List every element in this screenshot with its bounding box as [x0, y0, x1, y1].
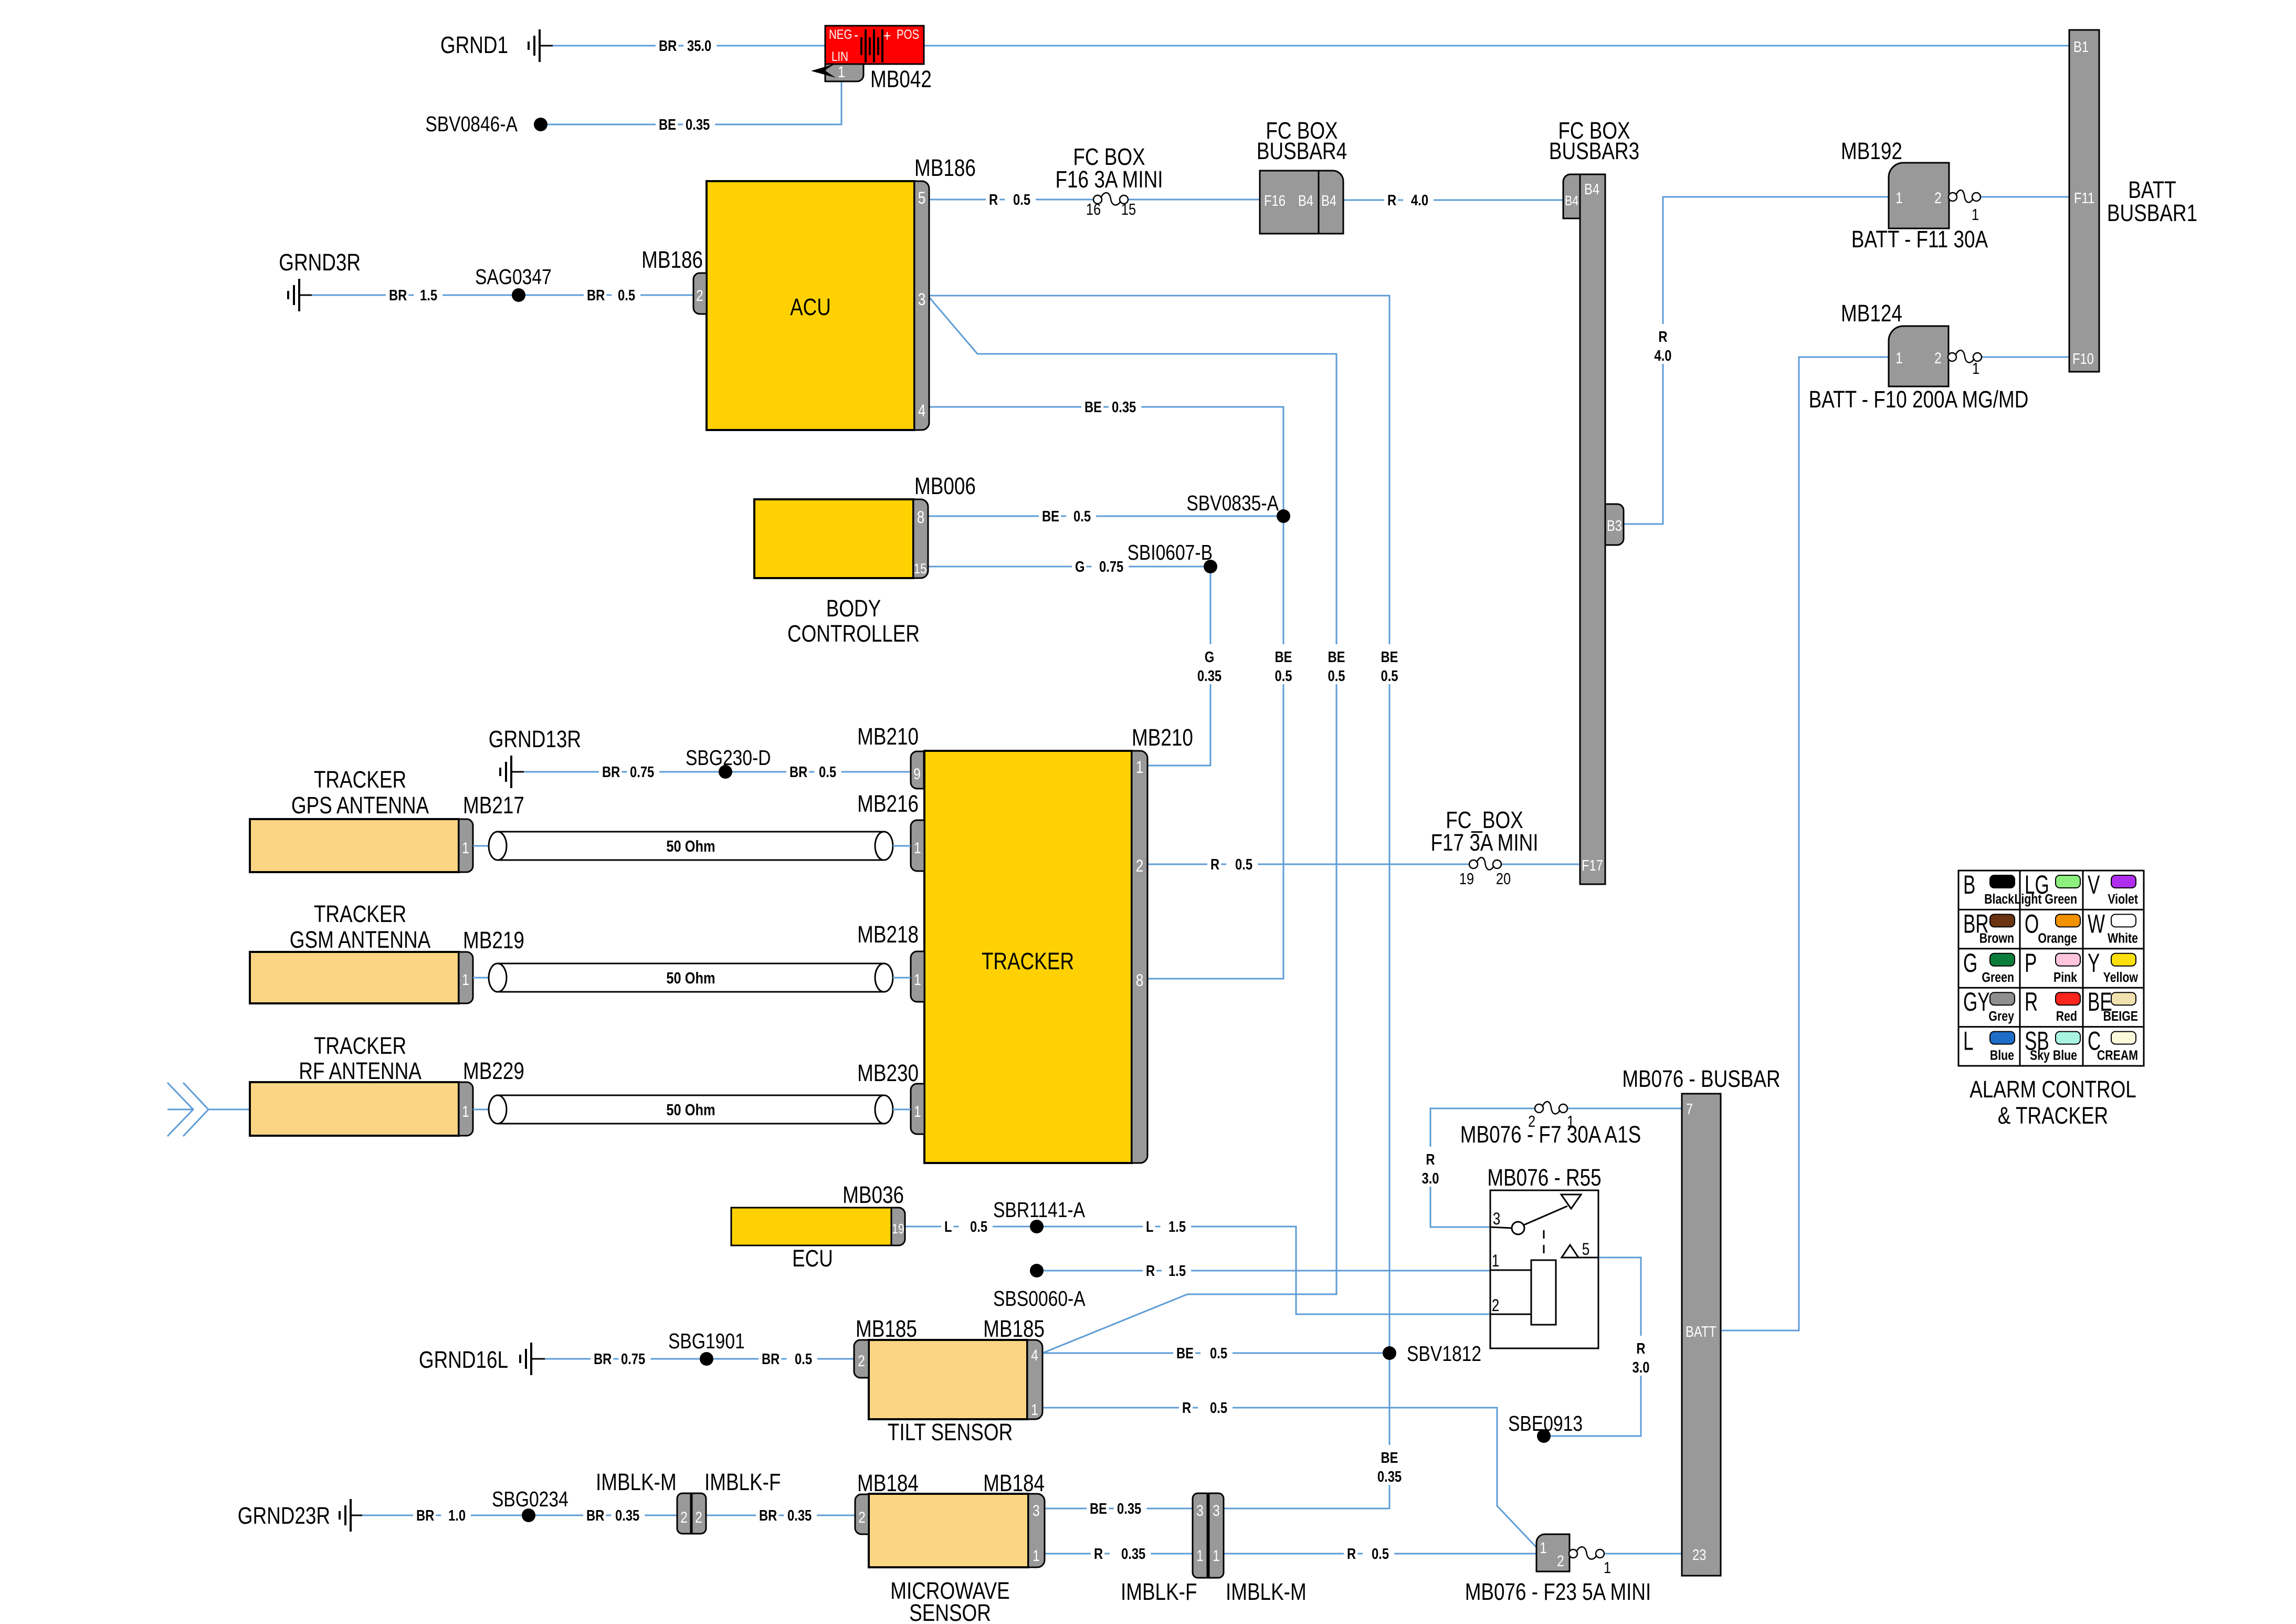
svg-text:P: P: [2025, 949, 2037, 978]
svg-text:BR: BR: [789, 763, 807, 781]
svg-text:SAG0347: SAG0347: [475, 265, 552, 289]
svg-text:F11: F11: [2074, 190, 2094, 207]
svg-text:1: 1: [914, 839, 921, 857]
svg-text:Red: Red: [2056, 1009, 2077, 1024]
svg-text:1: 1: [1031, 1401, 1038, 1419]
svg-text:1: 1: [1895, 349, 1903, 367]
svg-text:GPS ANTENNA: GPS ANTENNA: [291, 792, 429, 819]
svg-text:SENSOR: SENSOR: [909, 1600, 991, 1624]
svg-text:MB229: MB229: [463, 1058, 524, 1084]
svg-text:GY: GY: [1963, 988, 1990, 1017]
svg-text:SBS0060-A: SBS0060-A: [993, 1286, 1086, 1311]
svg-text:1.5: 1.5: [1168, 1262, 1186, 1280]
svg-text:1: 1: [914, 1103, 921, 1120]
svg-text:BE: BE: [659, 116, 676, 133]
svg-text:SBR1141-A: SBR1141-A: [993, 1198, 1085, 1222]
svg-text:0.75: 0.75: [630, 763, 654, 781]
svg-text:SBV0846-A: SBV0846-A: [425, 112, 518, 136]
svg-text:1: 1: [1136, 759, 1144, 777]
svg-text:2: 2: [695, 1508, 702, 1526]
svg-text:MB186: MB186: [641, 247, 703, 273]
svg-text:BR: BR: [389, 287, 407, 304]
svg-text:POS: POS: [897, 27, 919, 41]
svg-text:MB076 - BUSBAR: MB076 - BUSBAR: [1622, 1066, 1780, 1092]
svg-text:BE: BE: [1176, 1345, 1194, 1362]
svg-text:-: -: [854, 26, 858, 44]
svg-text:BATT: BATT: [2128, 177, 2176, 203]
svg-text:20: 20: [1496, 870, 1511, 888]
svg-text:Pink: Pink: [2053, 970, 2078, 986]
svg-text:0.35: 0.35: [1112, 399, 1136, 416]
svg-text:7: 7: [1686, 1101, 1693, 1118]
svg-text:2: 2: [1492, 1297, 1500, 1315]
svg-text:1.5: 1.5: [1168, 1218, 1186, 1235]
svg-text:MB210: MB210: [1132, 725, 1193, 751]
svg-text:F17: F17: [1582, 857, 1603, 874]
svg-text:MB076 - F7 30A A1S: MB076 - F7 30A A1S: [1460, 1122, 1641, 1148]
svg-text:White: White: [2108, 930, 2138, 946]
svg-text:1: 1: [462, 1103, 469, 1120]
svg-text:MB192: MB192: [1841, 138, 1902, 164]
svg-text:B1: B1: [2073, 38, 2089, 56]
svg-text:L: L: [1146, 1218, 1154, 1235]
svg-text:GRND3R: GRND3R: [279, 249, 361, 276]
svg-text:BUSBAR3: BUSBAR3: [1549, 138, 1639, 164]
svg-text:MB216: MB216: [857, 791, 919, 817]
svg-text:0.75: 0.75: [621, 1350, 645, 1368]
svg-text:G: G: [1075, 558, 1084, 575]
svg-text:Yellow: Yellow: [2103, 970, 2139, 986]
svg-text:L: L: [944, 1218, 952, 1235]
svg-text:BR: BR: [602, 763, 620, 781]
svg-text:GRND1: GRND1: [440, 32, 508, 58]
svg-text:IMBLK-M: IMBLK-M: [1226, 1579, 1307, 1605]
svg-text:BE: BE: [1381, 1449, 1398, 1466]
svg-text:R: R: [1094, 1545, 1103, 1563]
svg-text:MB219: MB219: [463, 927, 524, 954]
svg-text:GSM ANTENNA: GSM ANTENNA: [290, 927, 431, 953]
svg-text:MB210: MB210: [857, 724, 919, 750]
svg-text:8: 8: [917, 509, 925, 527]
svg-text:0.5: 0.5: [1073, 508, 1091, 525]
svg-text:IMBLK-F: IMBLK-F: [704, 1469, 781, 1495]
svg-text:Light Green: Light Green: [2014, 892, 2077, 907]
svg-text:0.35: 0.35: [1117, 1500, 1141, 1517]
svg-text:BUSBAR1: BUSBAR1: [2107, 200, 2197, 226]
svg-text:R: R: [1387, 192, 1396, 209]
svg-text:R: R: [1146, 1262, 1155, 1280]
svg-text:Blue: Blue: [1990, 1048, 2014, 1064]
svg-text:Green: Green: [1982, 970, 2014, 986]
svg-text:1.0: 1.0: [448, 1507, 466, 1524]
svg-text:0.5: 0.5: [618, 287, 635, 304]
svg-text:R: R: [1347, 1545, 1356, 1563]
svg-text:3: 3: [1493, 1210, 1501, 1229]
svg-text:4.0: 4.0: [1411, 192, 1428, 209]
svg-text:W: W: [2088, 909, 2105, 939]
svg-text:MB042: MB042: [870, 66, 932, 92]
svg-text:0.5: 0.5: [795, 1350, 812, 1368]
svg-text:+: +: [883, 27, 891, 45]
svg-text:B4: B4: [1565, 193, 1578, 209]
svg-text:0.35: 0.35: [1197, 667, 1221, 685]
svg-text:MB076 - F23 5A MINI: MB076 - F23 5A MINI: [1465, 1579, 1651, 1605]
svg-text:GRND13R: GRND13R: [489, 726, 581, 752]
svg-text:1: 1: [1196, 1547, 1204, 1565]
svg-text:SBG0234: SBG0234: [492, 1487, 568, 1511]
svg-text:1: 1: [914, 971, 921, 989]
svg-text:0.5: 0.5: [1013, 191, 1030, 208]
svg-text:0.5: 0.5: [1328, 667, 1345, 685]
svg-text:3: 3: [1196, 1502, 1204, 1520]
svg-text:MB186: MB186: [914, 155, 976, 181]
svg-text:B3: B3: [1607, 517, 1622, 535]
svg-text:50 Ohm: 50 Ohm: [666, 969, 715, 988]
svg-text:GRND23R: GRND23R: [238, 1503, 330, 1529]
svg-text:3.0: 3.0: [1421, 1170, 1439, 1187]
svg-text:19: 19: [892, 1221, 904, 1237]
svg-text:MB006: MB006: [914, 473, 976, 499]
svg-text:0.5: 0.5: [1210, 1399, 1227, 1417]
svg-text:RF ANTENNA: RF ANTENNA: [299, 1058, 422, 1084]
svg-text:1: 1: [462, 971, 469, 989]
svg-text:50 Ohm: 50 Ohm: [666, 837, 715, 856]
svg-text:35.0: 35.0: [687, 37, 711, 55]
svg-text:23: 23: [1692, 1546, 1706, 1564]
svg-text:L: L: [1963, 1027, 1973, 1056]
svg-text:15: 15: [914, 561, 927, 577]
svg-text:2: 2: [858, 1352, 865, 1370]
svg-text:2: 2: [858, 1508, 866, 1526]
svg-text:R: R: [2025, 988, 2038, 1017]
svg-text:Brown: Brown: [1979, 930, 2014, 946]
svg-text:Sky Blue: Sky Blue: [2030, 1048, 2077, 1064]
svg-text:BR: BR: [762, 1350, 780, 1368]
svg-text:G: G: [1205, 648, 1214, 666]
svg-text:4: 4: [918, 402, 926, 421]
svg-text:BE: BE: [1275, 648, 1292, 666]
svg-text:BR: BR: [594, 1350, 612, 1368]
svg-text:1: 1: [1492, 1252, 1500, 1271]
svg-text:2: 2: [1934, 189, 1942, 207]
svg-text:0.5: 0.5: [1210, 1345, 1227, 1362]
svg-text:19: 19: [1459, 870, 1474, 888]
svg-text:BE: BE: [1042, 508, 1059, 525]
svg-text:4.0: 4.0: [1654, 347, 1671, 364]
svg-text:ACU: ACU: [790, 294, 831, 320]
svg-text:0.5: 0.5: [1235, 856, 1252, 873]
svg-text:BEIGE: BEIGE: [2103, 1009, 2138, 1024]
svg-text:R: R: [1426, 1151, 1435, 1168]
svg-text:B: B: [1963, 871, 1975, 900]
svg-text:2: 2: [680, 1508, 688, 1526]
svg-text:8: 8: [1136, 972, 1144, 990]
svg-text:BR: BR: [586, 1507, 604, 1524]
svg-text:0.75: 0.75: [1099, 558, 1123, 575]
svg-text:SBV1812: SBV1812: [1407, 1342, 1481, 1366]
svg-text:SBG230-D: SBG230-D: [686, 746, 771, 770]
svg-text:1: 1: [838, 63, 845, 81]
svg-text:BE: BE: [1084, 399, 1102, 416]
svg-text:SBV0835-A: SBV0835-A: [1186, 491, 1279, 515]
svg-text:F16 3A MINI: F16 3A MINI: [1056, 166, 1163, 193]
svg-text:1: 1: [1213, 1547, 1220, 1565]
svg-text:B4: B4: [1321, 192, 1336, 209]
svg-text:2: 2: [1934, 349, 1942, 367]
svg-text:1.5: 1.5: [420, 287, 437, 304]
svg-text:B4: B4: [1298, 192, 1313, 209]
svg-text:BR: BR: [659, 37, 677, 55]
svg-text:1: 1: [1033, 1547, 1040, 1565]
svg-text:3: 3: [1033, 1502, 1040, 1520]
svg-text:MB218: MB218: [857, 921, 919, 948]
svg-text:3: 3: [1213, 1502, 1220, 1520]
svg-text:5: 5: [1582, 1241, 1590, 1259]
svg-text:MB184: MB184: [983, 1470, 1045, 1496]
svg-text:LIN: LIN: [831, 49, 848, 64]
svg-text:1: 1: [1895, 189, 1903, 207]
svg-text:Black: Black: [1984, 892, 2015, 907]
svg-text:SBI0607-B: SBI0607-B: [1127, 540, 1213, 564]
svg-text:Violet: Violet: [2108, 892, 2138, 907]
svg-text:0.5: 0.5: [819, 763, 836, 781]
svg-text:0.35: 0.35: [787, 1507, 812, 1524]
svg-text:0.5: 0.5: [1381, 667, 1398, 685]
svg-text:1: 1: [1972, 206, 1979, 224]
svg-text:TILT SENSOR: TILT SENSOR: [888, 1419, 1013, 1445]
svg-text:0.5: 0.5: [970, 1218, 987, 1235]
svg-text:G: G: [1963, 949, 1977, 978]
svg-text:1: 1: [462, 839, 469, 857]
svg-text:CONTROLLER: CONTROLLER: [787, 621, 920, 647]
svg-text:50 Ohm: 50 Ohm: [666, 1101, 715, 1119]
svg-text:0.35: 0.35: [1377, 1468, 1402, 1485]
svg-text:TRACKER: TRACKER: [314, 901, 406, 927]
svg-text:CREAM: CREAM: [2097, 1048, 2138, 1064]
svg-text:TRACKER: TRACKER: [314, 1033, 406, 1059]
svg-text:2: 2: [1557, 1552, 1564, 1570]
svg-text:1: 1: [1540, 1539, 1547, 1557]
svg-text:Y: Y: [2088, 949, 2100, 978]
svg-text:TRACKER: TRACKER: [982, 948, 1074, 975]
svg-text:9: 9: [913, 765, 921, 783]
svg-text:NEG: NEG: [829, 27, 852, 41]
svg-text:MB217: MB217: [463, 792, 524, 819]
svg-text:ECU: ECU: [792, 1245, 833, 1272]
svg-text:R: R: [1658, 328, 1667, 345]
svg-text:BODY: BODY: [826, 595, 881, 622]
svg-text:& TRACKER: & TRACKER: [1998, 1103, 2108, 1129]
svg-text:MB185: MB185: [983, 1316, 1045, 1342]
svg-text:V: V: [2088, 871, 2100, 900]
svg-text:Orange: Orange: [2038, 930, 2077, 946]
svg-text:BATT - F10 200A MG/MD: BATT - F10 200A MG/MD: [1809, 386, 2029, 413]
svg-text:MB124: MB124: [1841, 300, 1902, 327]
svg-text:IMBLK-M: IMBLK-M: [596, 1469, 677, 1495]
svg-text:0.5: 0.5: [1372, 1545, 1389, 1563]
svg-text:R: R: [989, 191, 998, 208]
svg-text:BATT: BATT: [1686, 1323, 1716, 1340]
svg-text:MB230: MB230: [857, 1060, 919, 1086]
svg-text:F16: F16: [1264, 192, 1286, 209]
svg-text:BUSBAR4: BUSBAR4: [1257, 138, 1347, 164]
svg-text:TRACKER: TRACKER: [314, 767, 406, 793]
svg-text:0.35: 0.35: [615, 1507, 639, 1524]
svg-text:2: 2: [1136, 857, 1144, 876]
svg-text:3: 3: [918, 291, 926, 309]
svg-text:16: 16: [1086, 201, 1101, 219]
svg-text:15: 15: [1121, 201, 1136, 219]
svg-text:BR: BR: [416, 1507, 434, 1524]
svg-text:BR: BR: [759, 1507, 777, 1524]
svg-text:SBE0913: SBE0913: [1508, 1411, 1583, 1436]
svg-text:IMBLK-F: IMBLK-F: [1121, 1579, 1197, 1605]
svg-text:4: 4: [1031, 1346, 1038, 1364]
svg-text:0.35: 0.35: [686, 116, 710, 133]
svg-text:F17 3A MINI: F17 3A MINI: [1431, 830, 1539, 856]
svg-text:O: O: [2025, 909, 2039, 939]
svg-text:SBG1901: SBG1901: [668, 1329, 745, 1353]
svg-text:0.5: 0.5: [1275, 667, 1292, 685]
svg-text:3.0: 3.0: [1632, 1359, 1649, 1376]
svg-text:Grey: Grey: [1988, 1009, 2014, 1024]
svg-text:R: R: [1636, 1340, 1645, 1357]
svg-text:5: 5: [918, 190, 926, 208]
svg-text:MB076 - R55: MB076 - R55: [1487, 1165, 1601, 1191]
svg-text:BE: BE: [1328, 648, 1345, 666]
svg-text:MB036: MB036: [842, 1182, 904, 1208]
svg-text:BE: BE: [1381, 648, 1398, 666]
svg-text:R: R: [1182, 1399, 1191, 1417]
svg-text:R: R: [1210, 856, 1219, 873]
svg-text:MB184: MB184: [857, 1470, 919, 1496]
svg-text:BR: BR: [587, 287, 605, 304]
svg-text:ALARM CONTROL: ALARM CONTROL: [1969, 1076, 2136, 1103]
svg-text:BE: BE: [1090, 1500, 1107, 1517]
svg-text:F10: F10: [2072, 350, 2094, 368]
svg-text:MB185: MB185: [856, 1316, 917, 1342]
svg-text:BATT - F11 30A: BATT - F11 30A: [1851, 226, 1988, 253]
svg-text:GRND16L: GRND16L: [419, 1347, 508, 1373]
svg-text:2: 2: [696, 287, 703, 305]
svg-text:1: 1: [1972, 360, 1979, 378]
svg-text:1: 1: [1604, 1559, 1611, 1577]
svg-text:B4: B4: [1584, 181, 1599, 198]
svg-text:0.35: 0.35: [1121, 1545, 1145, 1563]
